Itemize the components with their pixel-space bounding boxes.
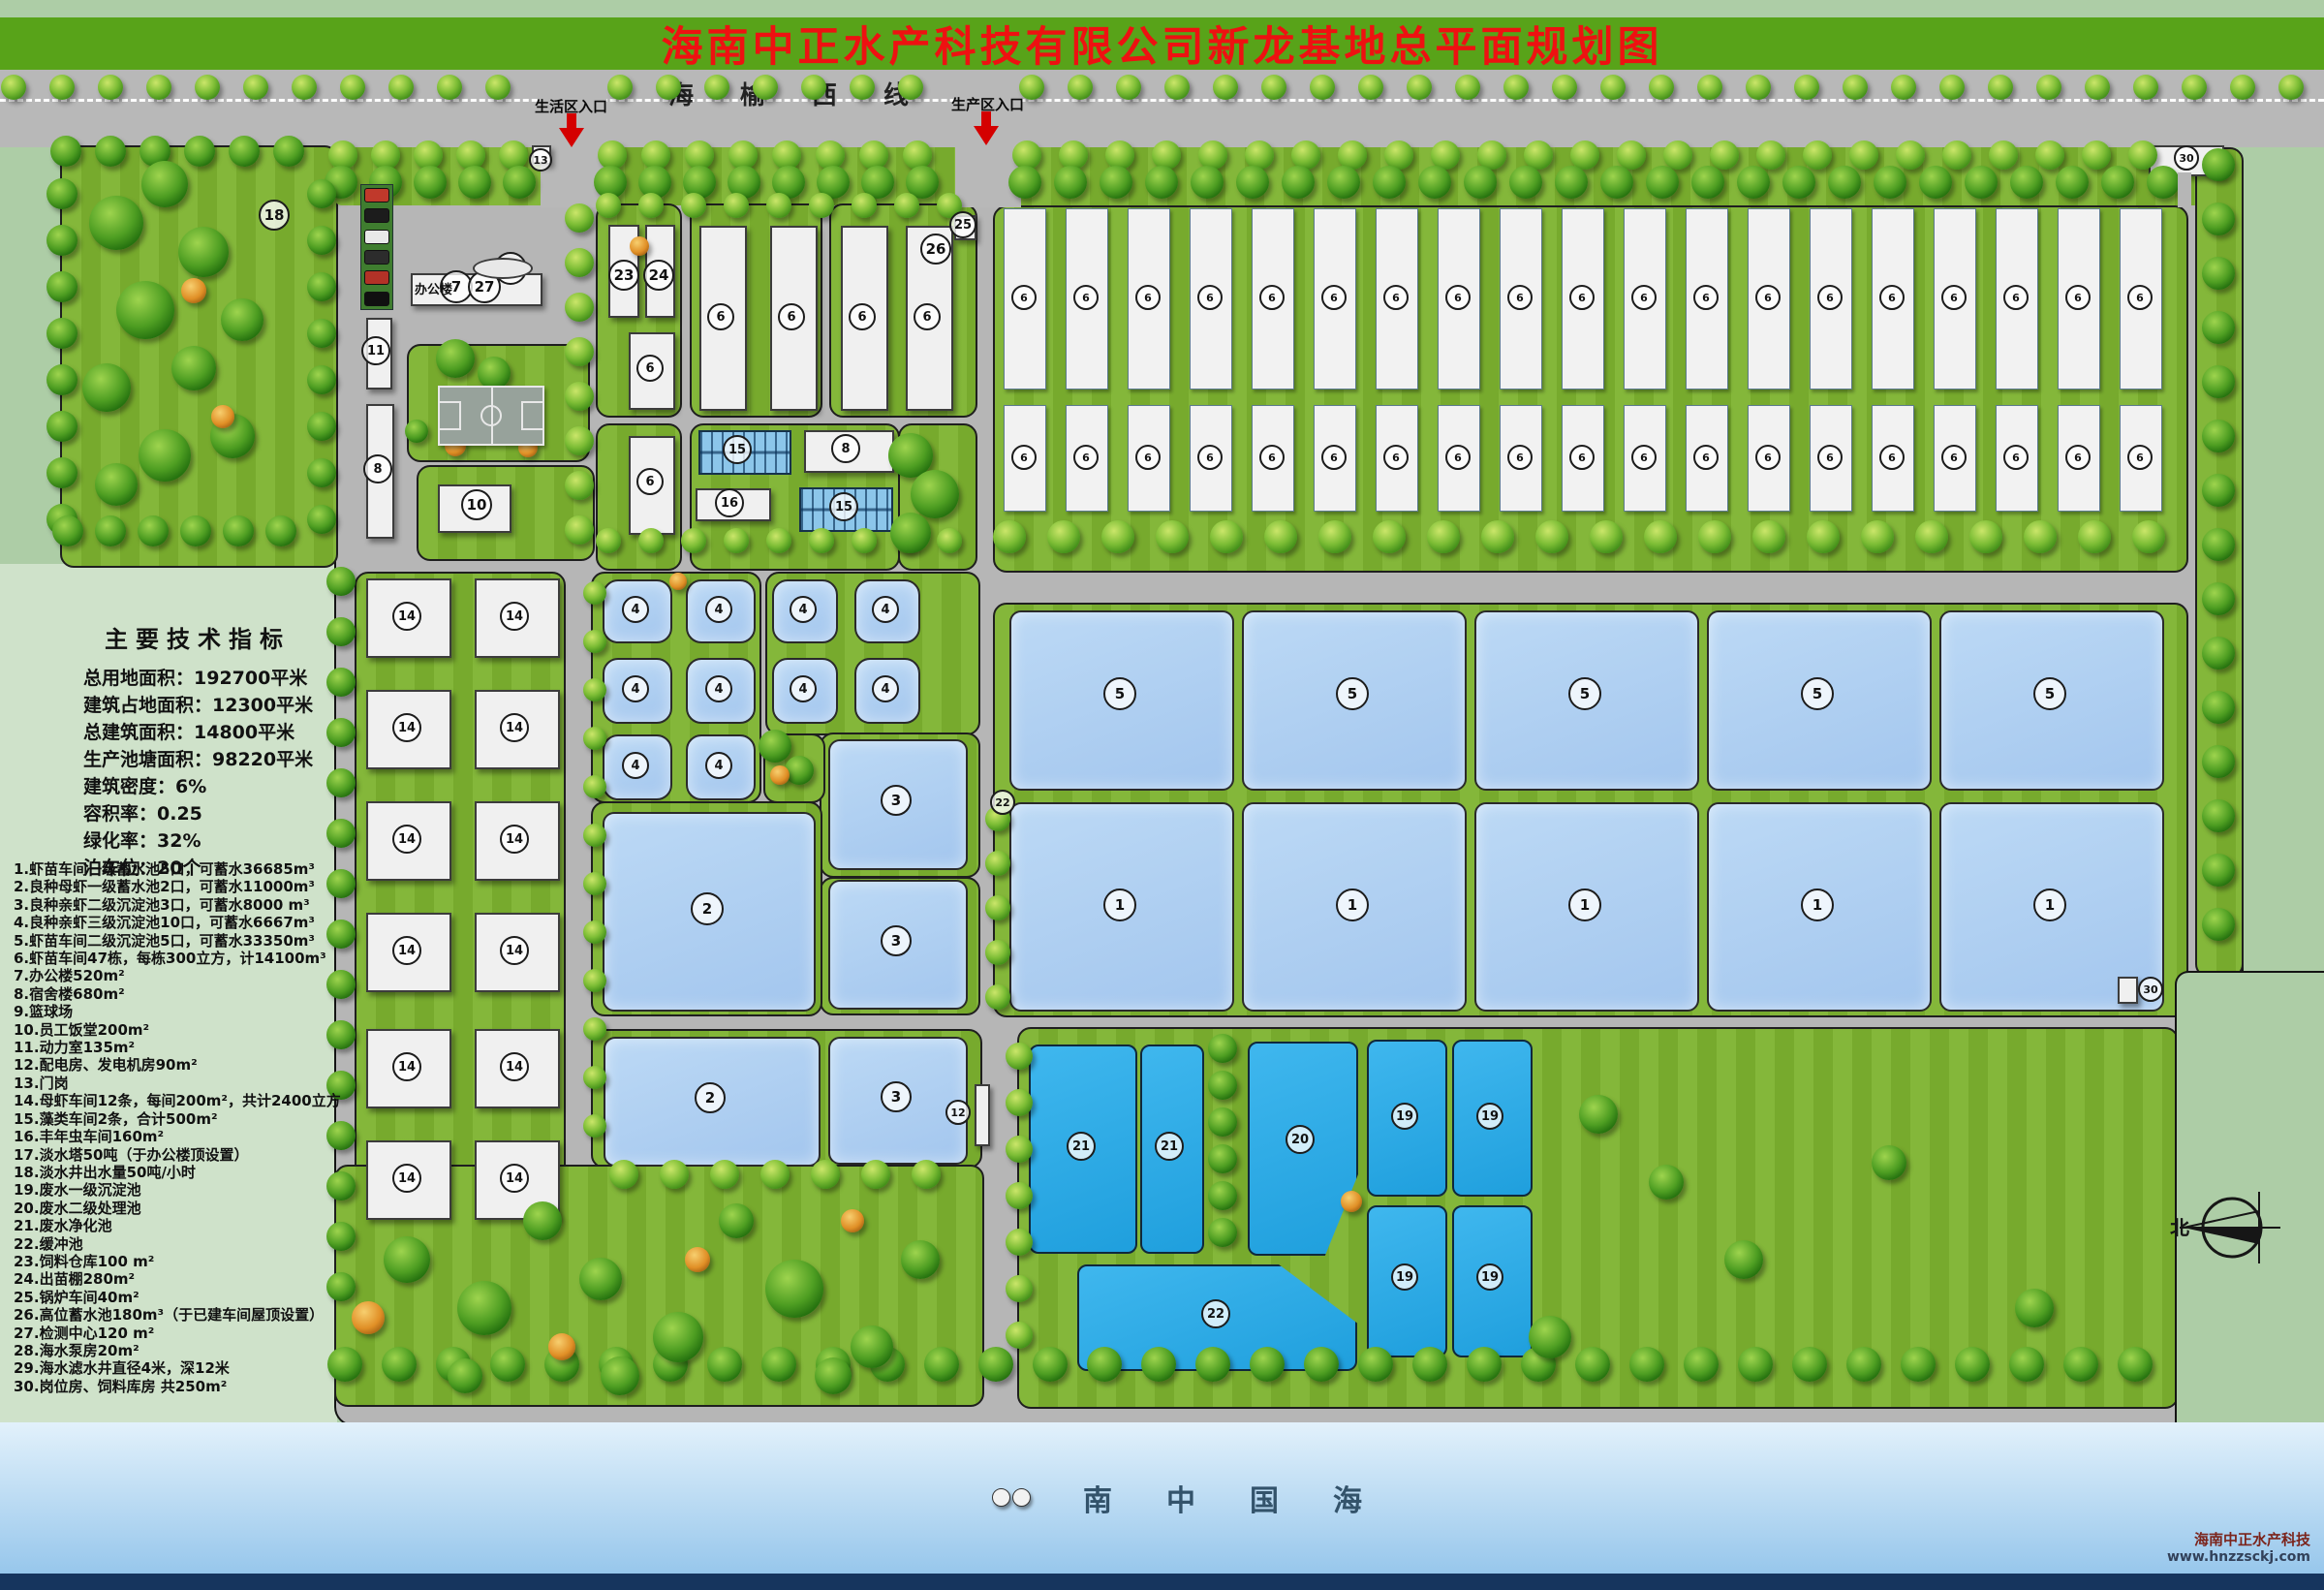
marker-11: 11 bbox=[361, 336, 390, 365]
legend-item: 30.岗位房、饲料库房 共250m² bbox=[14, 1378, 341, 1395]
marker-19: 19 bbox=[1391, 1263, 1418, 1291]
tree-icon bbox=[978, 1347, 1013, 1382]
tree-icon bbox=[2056, 166, 2089, 199]
tree-icon bbox=[2182, 75, 2207, 100]
tree-icon bbox=[95, 136, 126, 167]
tree-icon bbox=[138, 515, 169, 546]
tree-icon bbox=[1756, 140, 1785, 170]
tree-icon bbox=[1752, 520, 1785, 553]
tree-icon bbox=[307, 505, 336, 534]
tree-icon bbox=[1191, 166, 1224, 199]
tree-icon bbox=[1807, 520, 1840, 553]
marker-4: 4 bbox=[622, 675, 649, 702]
marker-21: 21 bbox=[1067, 1132, 1096, 1161]
tree-icon bbox=[1208, 1107, 1237, 1137]
tree-icon bbox=[565, 471, 594, 500]
tree-icon bbox=[46, 364, 77, 395]
tree-icon bbox=[2202, 799, 2235, 832]
tree-icon bbox=[2063, 1347, 2098, 1382]
tree-icon bbox=[1969, 520, 2002, 553]
marker-6: 6 bbox=[778, 303, 805, 330]
shrub-icon bbox=[181, 278, 206, 303]
tree-icon bbox=[2009, 1347, 2044, 1382]
tree-icon bbox=[1955, 1347, 1990, 1382]
watermark: 海南中正水产科技 www.hnzzsckj.com bbox=[2167, 1531, 2310, 1566]
shrub-icon bbox=[841, 1209, 864, 1232]
tree-icon bbox=[801, 75, 826, 100]
tree-icon bbox=[195, 75, 220, 100]
marker-5: 5 bbox=[1568, 677, 1601, 710]
tree-icon bbox=[985, 940, 1010, 965]
tree-icon bbox=[2202, 745, 2235, 778]
tree-icon bbox=[2202, 528, 2235, 561]
tree-icon bbox=[565, 248, 594, 277]
marker-2: 2 bbox=[691, 892, 724, 925]
tech-indicators-title: 主要技术指标 bbox=[105, 620, 291, 654]
marker-6: 6 bbox=[2065, 285, 2091, 310]
tree-icon bbox=[1575, 1347, 1610, 1382]
parked-car bbox=[364, 292, 389, 306]
marker-14: 14 bbox=[500, 1052, 529, 1081]
tree-icon bbox=[681, 528, 706, 553]
tree-icon bbox=[273, 136, 304, 167]
parked-car bbox=[364, 188, 389, 203]
tree-icon bbox=[583, 1017, 606, 1041]
tree-icon bbox=[759, 730, 791, 763]
tree-icon bbox=[1282, 166, 1315, 199]
legend-item: 9.篮球场 bbox=[14, 1003, 341, 1020]
court-key-left bbox=[440, 401, 461, 430]
tree-icon bbox=[229, 136, 260, 167]
marker-25: 25 bbox=[949, 211, 976, 238]
tree-icon bbox=[2202, 474, 2235, 507]
marker-14: 14 bbox=[392, 825, 421, 854]
tree-icon bbox=[478, 357, 511, 390]
tree-icon bbox=[809, 528, 834, 553]
guard-store-30 bbox=[2118, 977, 2138, 1004]
tree-icon bbox=[499, 140, 528, 170]
tree-icon bbox=[1872, 1145, 1906, 1180]
tree-icon bbox=[785, 756, 814, 785]
tree-icon bbox=[1006, 1275, 1033, 1302]
marker-6: 6 bbox=[1755, 445, 1781, 470]
marker-4: 4 bbox=[705, 596, 732, 623]
tree-icon bbox=[583, 775, 606, 798]
marker-6: 6 bbox=[1631, 285, 1657, 310]
tree-icon bbox=[811, 1160, 840, 1189]
marker-14: 14 bbox=[500, 825, 529, 854]
driveway-stub bbox=[2178, 172, 2191, 207]
marker-8: 8 bbox=[831, 434, 860, 463]
marker-23: 23 bbox=[608, 260, 639, 291]
tree-icon bbox=[1208, 1144, 1237, 1173]
mother-shrimp-zone bbox=[355, 572, 566, 1225]
tree-icon bbox=[911, 470, 959, 518]
tree-icon bbox=[704, 75, 729, 100]
tree-icon bbox=[1236, 166, 1269, 199]
tree-icon bbox=[1358, 75, 1383, 100]
tree-icon bbox=[1327, 166, 1360, 199]
tree-icon bbox=[1373, 166, 1406, 199]
marker-24: 24 bbox=[643, 260, 674, 291]
tree-icon bbox=[1828, 166, 1861, 199]
marker-18: 18 bbox=[259, 200, 290, 231]
tree-icon bbox=[1746, 75, 1771, 100]
tree-icon bbox=[2202, 365, 2235, 398]
tree-icon bbox=[2082, 140, 2111, 170]
legend-item: 27.检测中心120 m² bbox=[14, 1325, 341, 1342]
marker-6: 6 bbox=[1073, 445, 1099, 470]
tree-icon bbox=[760, 1160, 790, 1189]
tree-icon bbox=[292, 75, 317, 100]
tree-icon bbox=[1600, 166, 1633, 199]
tree-icon bbox=[1141, 1347, 1176, 1382]
tree-icon bbox=[1261, 75, 1286, 100]
prod-entrance-arrow-icon bbox=[974, 111, 999, 145]
tree-icon bbox=[2036, 75, 2061, 100]
tree-icon bbox=[221, 298, 263, 341]
marker-6: 6 bbox=[707, 303, 734, 330]
marker-4: 4 bbox=[790, 596, 817, 623]
tree-icon bbox=[1087, 1347, 1122, 1382]
marker-1: 1 bbox=[2033, 889, 2066, 921]
tree-icon bbox=[607, 75, 633, 100]
tree-icon bbox=[326, 668, 356, 697]
legend-item: 15.藻类车间2条，合计500m² bbox=[14, 1110, 341, 1128]
marker-15: 15 bbox=[723, 435, 752, 464]
tree-icon bbox=[2035, 140, 2064, 170]
tree-icon bbox=[1464, 166, 1497, 199]
legend-item: 4.良种亲虾三级沉淀池10口，可蓄水6667m³ bbox=[14, 914, 341, 931]
parked-car bbox=[364, 270, 389, 285]
marker-5: 5 bbox=[1801, 677, 1834, 710]
tree-icon bbox=[1649, 1165, 1684, 1200]
marker-21: 21 bbox=[1155, 1132, 1184, 1161]
tree-icon bbox=[1555, 166, 1588, 199]
tree-icon bbox=[1250, 1347, 1285, 1382]
tree-icon bbox=[1407, 75, 1432, 100]
marker-6: 6 bbox=[1135, 445, 1161, 470]
tree-icon bbox=[1503, 75, 1529, 100]
marker-6: 6 bbox=[1941, 285, 1967, 310]
north-glyph: 北 bbox=[2170, 1216, 2189, 1239]
legend-item: 29.海水滤水井直径4米，深12米 bbox=[14, 1359, 341, 1377]
marker-22: 22 bbox=[1201, 1299, 1230, 1328]
tree-icon bbox=[1600, 75, 1626, 100]
legend-item: 23.饲料仓库100 m² bbox=[14, 1253, 341, 1270]
tree-icon bbox=[1896, 140, 1925, 170]
tree-icon bbox=[98, 75, 123, 100]
tree-icon bbox=[2133, 75, 2158, 100]
marker-6: 6 bbox=[1879, 445, 1905, 470]
tree-icon bbox=[1724, 1240, 1763, 1279]
tree-icon bbox=[1101, 520, 1134, 553]
tree-icon bbox=[326, 768, 356, 797]
tree-icon bbox=[326, 819, 356, 848]
watermark-website: www.hnzzsckj.com bbox=[2167, 1548, 2310, 1566]
sea-filter-well bbox=[1012, 1488, 1031, 1507]
marker-6: 6 bbox=[1445, 285, 1471, 310]
marker-6: 6 bbox=[2003, 285, 2029, 310]
tree-icon bbox=[243, 75, 268, 100]
legend-list: 1.虾苗车间一级蓄水池5口，可蓄水36685m³2.良种母虾一级蓄水池2口，可蓄… bbox=[14, 860, 341, 1395]
tree-icon bbox=[1164, 75, 1190, 100]
tree-icon bbox=[638, 193, 664, 218]
legend-item: 1.虾苗车间一级蓄水池5口，可蓄水36685m³ bbox=[14, 860, 341, 878]
tree-icon bbox=[1737, 166, 1770, 199]
tree-icon bbox=[1481, 520, 1514, 553]
tree-icon bbox=[1874, 166, 1906, 199]
tree-icon bbox=[223, 515, 254, 546]
tree-icon bbox=[815, 1357, 852, 1394]
life-entrance-arrow-icon bbox=[559, 113, 584, 147]
tree-icon bbox=[2202, 257, 2235, 290]
tree-icon bbox=[1644, 520, 1677, 553]
marker-6: 6 bbox=[2127, 285, 2153, 310]
legend-item: 28.海水泵房20m² bbox=[14, 1342, 341, 1359]
tree-icon bbox=[583, 1066, 606, 1089]
generator-room-12 bbox=[975, 1084, 990, 1146]
tree-icon bbox=[1116, 75, 1141, 100]
tree-icon bbox=[1304, 1347, 1339, 1382]
tree-icon bbox=[1697, 75, 1722, 100]
page-title: 海南中正水产科技有限公司新龙基地总平面规划图 bbox=[662, 14, 1663, 74]
marker-6: 6 bbox=[1011, 285, 1037, 310]
marker-6: 6 bbox=[1631, 445, 1657, 470]
marker-6: 6 bbox=[1817, 285, 1843, 310]
tree-icon bbox=[523, 1201, 562, 1240]
tree-icon bbox=[1792, 1347, 1827, 1382]
tree-icon bbox=[1006, 1043, 1033, 1070]
tree-icon bbox=[184, 136, 215, 167]
marker-19: 19 bbox=[1476, 1103, 1503, 1130]
tree-icon bbox=[436, 339, 475, 378]
tree-icon bbox=[583, 630, 606, 653]
tree-icon bbox=[596, 528, 621, 553]
marker-14: 14 bbox=[500, 602, 529, 631]
tree-icon bbox=[1047, 520, 1080, 553]
tree-icon bbox=[719, 1203, 754, 1238]
marker-6: 6 bbox=[1941, 445, 1967, 470]
tree-icon bbox=[912, 1160, 941, 1189]
marker-6: 6 bbox=[1383, 445, 1409, 470]
tree-icon bbox=[2202, 691, 2235, 724]
tree-icon bbox=[707, 1347, 742, 1382]
marker-6: 6 bbox=[1321, 445, 1347, 470]
tree-icon bbox=[457, 1281, 511, 1335]
marker-6: 6 bbox=[1569, 445, 1595, 470]
shrub-icon bbox=[669, 573, 687, 590]
title-band: 海南中正水产科技有限公司新龙基地总平面规划图 bbox=[0, 17, 2324, 70]
sea-bottom-bar bbox=[0, 1574, 2324, 1590]
tree-icon bbox=[2202, 311, 2235, 344]
tree-icon bbox=[49, 75, 75, 100]
tree-icon bbox=[2010, 166, 2043, 199]
legend-item: 3.良种亲虾二级沉淀池3口，可蓄水8000 m³ bbox=[14, 896, 341, 914]
marker-4: 4 bbox=[872, 675, 899, 702]
tree-icon bbox=[1100, 166, 1132, 199]
tree-icon bbox=[1891, 75, 1916, 100]
tree-icon bbox=[1663, 140, 1692, 170]
tree-icon bbox=[2278, 75, 2304, 100]
tree-icon bbox=[985, 851, 1010, 876]
tree-icon bbox=[82, 363, 131, 412]
marker-10: 10 bbox=[461, 489, 492, 520]
tree-icon bbox=[388, 75, 414, 100]
tree-icon bbox=[178, 227, 229, 277]
tree-icon bbox=[1006, 1089, 1033, 1116]
tree-icon bbox=[565, 382, 594, 411]
marker-14: 14 bbox=[392, 1052, 421, 1081]
marker-3: 3 bbox=[881, 1081, 912, 1112]
tree-icon bbox=[583, 581, 606, 605]
marker-6: 6 bbox=[1197, 445, 1223, 470]
tree-icon bbox=[1, 75, 26, 100]
marker-6: 6 bbox=[1445, 445, 1471, 470]
tree-icon bbox=[852, 528, 877, 553]
tree-icon bbox=[1915, 520, 1948, 553]
marker-6: 6 bbox=[1011, 445, 1037, 470]
tree-icon bbox=[46, 271, 77, 302]
legend-item: 2.良种母虾一级蓄水池2口，可蓄水11000m³ bbox=[14, 878, 341, 895]
sea-filter-well bbox=[992, 1488, 1010, 1507]
parked-car bbox=[364, 230, 389, 244]
tree-icon bbox=[1698, 520, 1731, 553]
marker-4: 4 bbox=[705, 675, 732, 702]
tree-icon bbox=[761, 1347, 796, 1382]
marker-6: 6 bbox=[1693, 285, 1719, 310]
tree-icon bbox=[437, 75, 462, 100]
marker-6: 6 bbox=[1507, 285, 1533, 310]
tree-icon bbox=[46, 178, 77, 209]
court-key-right bbox=[521, 401, 542, 430]
marker-14: 14 bbox=[392, 1164, 421, 1193]
tree-icon bbox=[1509, 166, 1542, 199]
tree-icon bbox=[116, 281, 174, 339]
tree-icon bbox=[2085, 75, 2110, 100]
tree-icon bbox=[2202, 148, 2235, 181]
tree-icon bbox=[1006, 1229, 1033, 1256]
shrub-icon bbox=[685, 1247, 710, 1272]
legend-item: 12.配电房、发电机房90m² bbox=[14, 1056, 341, 1074]
tree-icon bbox=[50, 136, 81, 167]
tree-icon bbox=[171, 346, 216, 390]
tree-icon bbox=[414, 166, 447, 199]
legend-item: 14.母虾车间12条，每间200m²，共计2400立方 bbox=[14, 1092, 341, 1109]
tree-icon bbox=[46, 457, 77, 488]
marker-2: 2 bbox=[695, 1082, 726, 1113]
tree-icon bbox=[583, 824, 606, 847]
tree-icon bbox=[1939, 75, 1965, 100]
marker-4: 4 bbox=[790, 675, 817, 702]
tree-icon bbox=[1710, 140, 1739, 170]
tree-icon bbox=[583, 1114, 606, 1138]
tree-icon bbox=[2230, 75, 2255, 100]
marker-5: 5 bbox=[2033, 677, 2066, 710]
tree-icon bbox=[1156, 520, 1189, 553]
tree-icon bbox=[2202, 854, 2235, 887]
tree-icon bbox=[1988, 75, 2013, 100]
legend-item: 10.员工饭堂200m² bbox=[14, 1021, 341, 1039]
tree-icon bbox=[1846, 1347, 1881, 1382]
marker-6: 6 bbox=[1383, 285, 1409, 310]
marker-6: 6 bbox=[1879, 285, 1905, 310]
marker-4: 4 bbox=[622, 596, 649, 623]
tree-icon bbox=[1989, 140, 2018, 170]
compass-icon: 北 bbox=[2170, 1184, 2286, 1275]
marker-1: 1 bbox=[1801, 889, 1834, 921]
tree-icon bbox=[985, 984, 1010, 1010]
tree-icon bbox=[458, 166, 491, 199]
tree-icon bbox=[579, 1258, 622, 1300]
tree-icon bbox=[1208, 1071, 1237, 1100]
tree-icon bbox=[601, 1356, 639, 1395]
tree-icon bbox=[1552, 75, 1577, 100]
tree-icon bbox=[583, 969, 606, 992]
tree-icon bbox=[1794, 75, 1819, 100]
tech-indicators-list: 总用地面积：192700平米 建筑占地面积：12300平米 总建筑面积：1480… bbox=[83, 665, 313, 882]
tree-icon bbox=[753, 75, 778, 100]
tree-icon bbox=[898, 75, 923, 100]
marker-6: 6 bbox=[2065, 445, 2091, 470]
tree-icon bbox=[565, 293, 594, 322]
tree-icon bbox=[326, 718, 356, 747]
tree-icon bbox=[710, 1160, 739, 1189]
tree-icon bbox=[1318, 520, 1351, 553]
marker-20: 20 bbox=[1286, 1125, 1315, 1154]
tree-icon bbox=[307, 412, 336, 441]
legend-item: 18.淡水井出水量50吨/小时 bbox=[14, 1164, 341, 1181]
tree-icon bbox=[180, 515, 211, 546]
tree-icon bbox=[1033, 1347, 1068, 1382]
tree-icon bbox=[583, 872, 606, 895]
tree-icon bbox=[1145, 166, 1178, 199]
tree-icon bbox=[46, 411, 77, 442]
tree-icon bbox=[384, 1236, 430, 1283]
marker-6: 6 bbox=[914, 303, 941, 330]
tree-icon bbox=[583, 727, 606, 750]
marker-30: 30 bbox=[2138, 977, 2163, 1002]
tree-icon bbox=[565, 203, 594, 233]
tree-icon bbox=[565, 515, 594, 545]
marker-14: 14 bbox=[500, 1164, 529, 1193]
marker-1: 1 bbox=[1336, 889, 1369, 921]
legend-item: 5.虾苗车间二级沉淀池5口，可蓄水33350m³ bbox=[14, 932, 341, 950]
sea-name: 南中国海 bbox=[1083, 1477, 1416, 1519]
legend-item: 21.废水净化池 bbox=[14, 1217, 341, 1234]
tree-icon bbox=[985, 895, 1010, 920]
tree-icon bbox=[890, 513, 931, 553]
tree-icon bbox=[326, 617, 356, 646]
tree-icon bbox=[1358, 1347, 1393, 1382]
legend-item: 20.废水二级处理池 bbox=[14, 1200, 341, 1217]
tree-icon bbox=[1068, 75, 1093, 100]
tree-icon bbox=[596, 193, 621, 218]
tree-icon bbox=[724, 528, 749, 553]
tree-icon bbox=[809, 193, 834, 218]
marker-15: 15 bbox=[829, 492, 858, 521]
marker-4: 4 bbox=[872, 596, 899, 623]
legend-item: 8.宿舍楼680m² bbox=[14, 985, 341, 1003]
marker-19: 19 bbox=[1391, 1103, 1418, 1130]
tree-icon bbox=[326, 567, 356, 596]
tree-icon bbox=[638, 528, 664, 553]
shrub-icon bbox=[352, 1301, 385, 1334]
tree-icon bbox=[1684, 1347, 1719, 1382]
tree-icon bbox=[1579, 1095, 1618, 1134]
tree-icon bbox=[1006, 1182, 1033, 1209]
marker-14: 14 bbox=[500, 713, 529, 742]
